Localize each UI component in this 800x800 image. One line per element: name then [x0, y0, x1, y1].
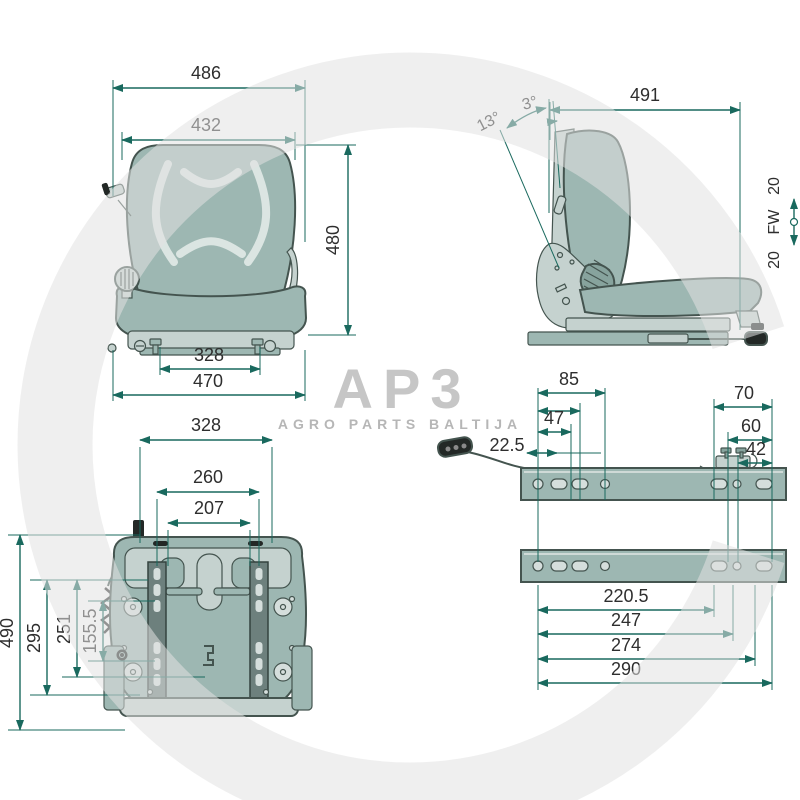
dim-label-480: 480: [323, 225, 343, 255]
travel-fw-label: FW: [766, 209, 783, 235]
bottom-bracket-right: [292, 646, 312, 710]
dim-label-220-5: 220.5: [603, 586, 648, 606]
watermark-subtitle-text: AGRO PARTS BALTIJA: [278, 416, 522, 432]
dim-label-328-front: 328: [194, 345, 224, 365]
dim-side-travel: 20 FW 20: [766, 177, 798, 269]
dim-label-60: 60: [741, 416, 761, 436]
dim-label-260: 260: [193, 467, 223, 487]
dim-label-486: 486: [191, 63, 221, 83]
watermark-logo: AP3 AGRO PARTS BALTIJA: [278, 357, 522, 432]
seat-technical-drawing: AP3 AGRO PARTS BALTIJA: [0, 0, 800, 800]
bottom-slot-left: [153, 541, 168, 546]
dim-label-295: 295: [24, 623, 44, 653]
dim-label-85: 85: [559, 369, 579, 389]
bottom-arm-right: [214, 588, 250, 595]
dim-label-207: 207: [194, 498, 224, 518]
side-rail-clamp: [648, 334, 688, 343]
dim-label-470: 470: [193, 371, 223, 391]
dim-label-491: 491: [630, 85, 660, 105]
dim-label-490: 490: [0, 618, 17, 648]
dim-label-70: 70: [734, 383, 754, 403]
dim-label-22-5: 22.5: [489, 435, 524, 455]
rail-upper: [521, 468, 786, 500]
dim-label-328-bottom: 328: [191, 415, 221, 435]
dim-label-47: 47: [544, 408, 564, 428]
dim-rail-d: 70: [714, 383, 772, 407]
dim-label-274: 274: [611, 635, 641, 655]
dim-rail-c: 22.5: [489, 435, 601, 455]
dim-rail-a: 85: [538, 369, 605, 393]
dim-rail-e: 60: [728, 416, 772, 440]
dim-label-42: 42: [746, 439, 766, 459]
travel-up-label: 20: [766, 177, 783, 195]
bottom-center-bean: [197, 554, 222, 610]
bottom-arm-left: [166, 588, 202, 595]
travel-down-label: 20: [766, 251, 783, 269]
bottom-rail-right: [250, 562, 268, 698]
travel-center-mark: [791, 219, 798, 226]
watermark-logo-text: AP3: [333, 357, 472, 420]
dim-label-247: 247: [611, 610, 641, 630]
watermark-ring: [55, 90, 765, 800]
